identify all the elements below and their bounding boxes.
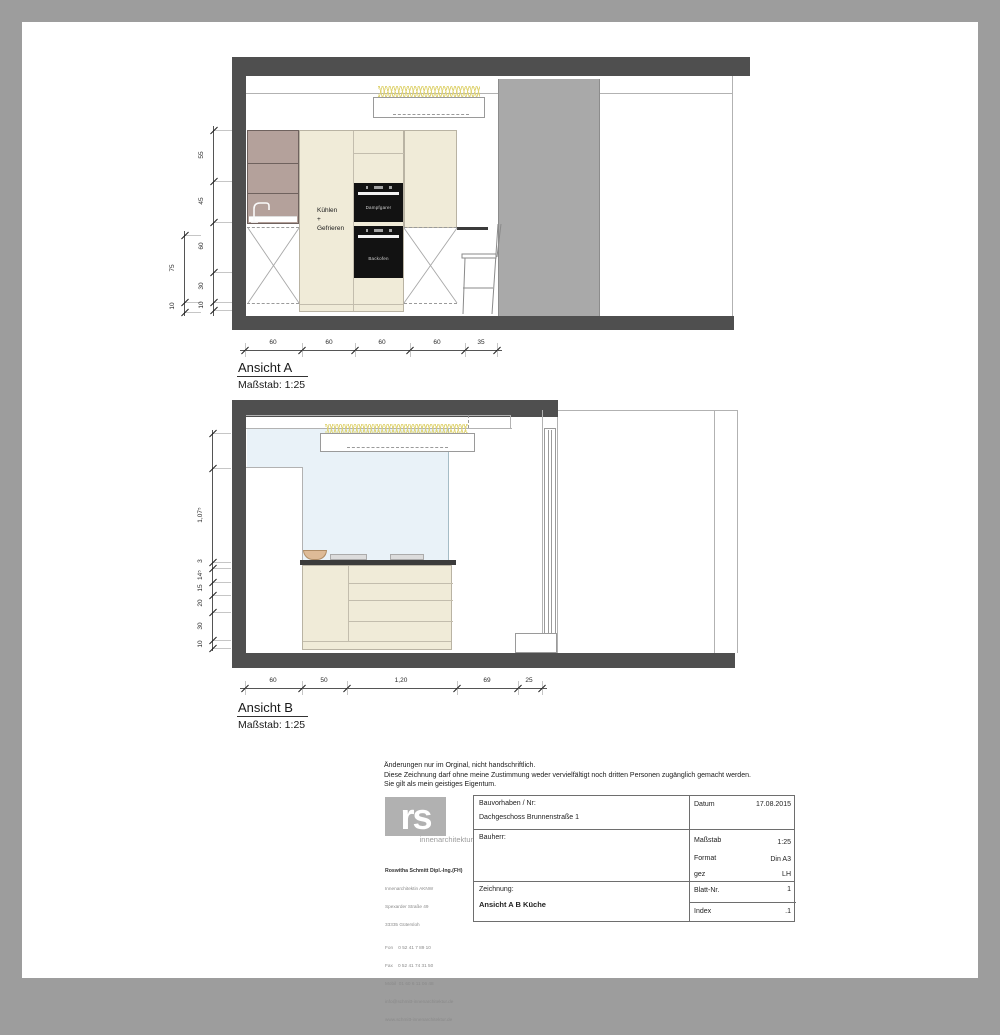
b-soffit-edge (510, 415, 511, 428)
b-soffit-dashed-edge (468, 415, 469, 428)
copyright-note: Änderungen nur im Orginal, nicht handsch… (384, 761, 824, 790)
table-row-divider (474, 881, 794, 882)
appliance-handle (358, 192, 399, 195)
b-drawer-line (348, 600, 453, 601)
a-hood-lights (378, 86, 480, 97)
a-ceiling-line (246, 93, 733, 94)
drawing-label: Zeichnung: (479, 886, 514, 893)
a-upper-cabinet-right (404, 130, 457, 228)
b-glass-splashback-main (302, 467, 448, 560)
b-flue (544, 428, 556, 635)
b-view-title: Ansicht B (238, 700, 293, 715)
sheet-value: 1 (694, 886, 791, 893)
b-island-divider (348, 566, 349, 641)
b-drawer-line (348, 621, 453, 622)
format-value: Din A3 (694, 856, 791, 863)
architect-web: www.schmitt-innenarchitektur.de (385, 1017, 473, 1023)
a-floor-band (232, 316, 734, 330)
a-cabinet-divider (248, 163, 298, 164)
architect-info: Roswitha Schmitt Dipl.-Ing.(FH) Innenarc… (385, 856, 473, 1035)
architect-mobil: Mobil 01 60 6 11 06 48 (385, 981, 473, 987)
b-left-wall (232, 400, 246, 653)
a-view-title: Ansicht A (238, 360, 292, 375)
architect-line: Innenarchitektin AKNW (385, 886, 473, 892)
b-title-underline (237, 716, 308, 717)
b-hood-dashed-line (347, 447, 448, 448)
logo-subtitle: innenarchitektur (385, 835, 473, 844)
architect-name: Roswitha Schmitt Dipl.-Ing.(FH) (385, 868, 473, 874)
project-value: Dachgeschoss Brunnenstraße 1 (479, 814, 579, 821)
a-hood-dashed-line (393, 114, 469, 115)
a-title-underline (237, 376, 308, 377)
a-bar-stool (458, 223, 506, 316)
copyright-note-line2: Diese Zeichnung darf ohne meine Zustimmu… (384, 771, 824, 781)
b-column-line-right (557, 417, 558, 653)
a-plinth-line (300, 304, 403, 305)
architect-fax: Fax 0 52 41 74 31 50 (385, 963, 473, 969)
b-right-wall-line2 (737, 410, 738, 653)
copyright-note-line3: Sie gilt als mein geistiges Eigentum. (384, 780, 824, 790)
a-right-wall-line (732, 76, 733, 316)
appliance-display-icons (366, 186, 392, 189)
table-row-divider (689, 902, 796, 903)
a-faucet-icon (249, 197, 277, 223)
a-ceiling-band (232, 57, 750, 76)
b-view-scale: Maßstab: 1:25 (238, 719, 305, 731)
b-island-body (302, 565, 452, 650)
drawing-value: Ansicht A B Küche (479, 900, 546, 909)
fridge-label-line1: Kühlen (317, 206, 357, 215)
fridge-label-line2: + (317, 215, 357, 224)
b-flue-inner-lines (548, 430, 552, 633)
b-right-top-line (558, 410, 738, 411)
table-row-divider (474, 829, 794, 830)
b-right-wall-line1 (714, 410, 715, 653)
architect-line: Spexarder Straße 49 (385, 904, 473, 910)
copyright-note-line1: Änderungen nur im Orginal, nicht handsch… (384, 761, 824, 771)
a-cabinet-divider (248, 193, 298, 194)
scale-value: 1:25 (694, 839, 791, 846)
a-view-scale: Maßstab: 1:25 (238, 379, 305, 391)
b-soffit-top-line (246, 415, 510, 416)
logo: rs (385, 797, 446, 836)
project-label: Bauvorhaben / Nr: (479, 800, 536, 807)
steam-oven-label: Dampfgarer (354, 205, 403, 210)
architect-fon: Fon 0 52 41 7 89 10 (385, 945, 473, 951)
a-steam-oven: Dampfgarer (354, 183, 403, 222)
b-floor-band (232, 653, 735, 668)
client-label: Bauherr: (479, 834, 506, 841)
b-extractor-hood (320, 433, 475, 452)
a-left-wall (232, 57, 246, 330)
date-value: 17.08.2015 (694, 801, 791, 808)
a-cabinet-divider (353, 153, 405, 154)
sheet: { "colors": { "frame": "#9d9d9d", "struc… (0, 0, 1000, 1000)
a-diagonal-cross-lines (246, 228, 458, 304)
logo-rs-text: rs (400, 799, 430, 835)
gez-value: LH (694, 871, 791, 878)
architect-line: 33335 Gütersloh (385, 922, 473, 928)
b-column-line-left (542, 410, 543, 653)
b-plinth-line (303, 641, 451, 642)
b-drawer-line (348, 583, 453, 584)
b-bottom-step-box (515, 633, 557, 653)
title-block-table: Bauvorhaben / Nr: Dachgeschoss Brunnenst… (473, 795, 795, 922)
b-niche-line-h (246, 467, 302, 468)
a-wall-column (498, 79, 600, 316)
index-value: .1 (694, 908, 791, 915)
